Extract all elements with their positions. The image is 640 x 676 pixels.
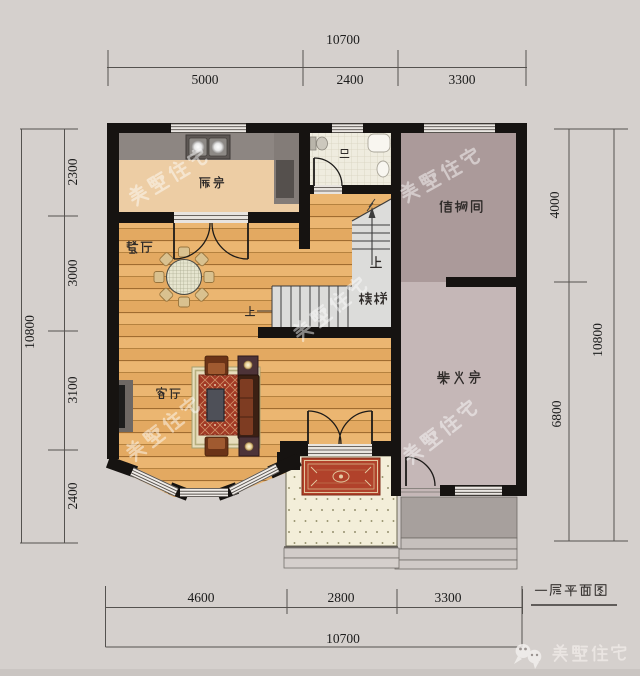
svg-text:10700: 10700 [326, 32, 360, 47]
svg-text:2800: 2800 [328, 590, 355, 605]
svg-text:10800: 10800 [22, 315, 37, 349]
svg-text:4600: 4600 [188, 590, 215, 605]
svg-text:3300: 3300 [435, 590, 462, 605]
svg-text:6800: 6800 [549, 400, 564, 427]
svg-text:3300: 3300 [449, 72, 476, 87]
svg-text:10700: 10700 [326, 631, 360, 646]
svg-text:2400: 2400 [337, 72, 364, 87]
svg-text:2400: 2400 [65, 482, 80, 509]
svg-text:3000: 3000 [65, 259, 80, 286]
svg-text:2300: 2300 [65, 158, 80, 185]
svg-text:5000: 5000 [192, 72, 219, 87]
svg-text:3100: 3100 [65, 376, 80, 403]
svg-text:10800: 10800 [590, 323, 605, 357]
svg-text:4000: 4000 [547, 191, 562, 218]
